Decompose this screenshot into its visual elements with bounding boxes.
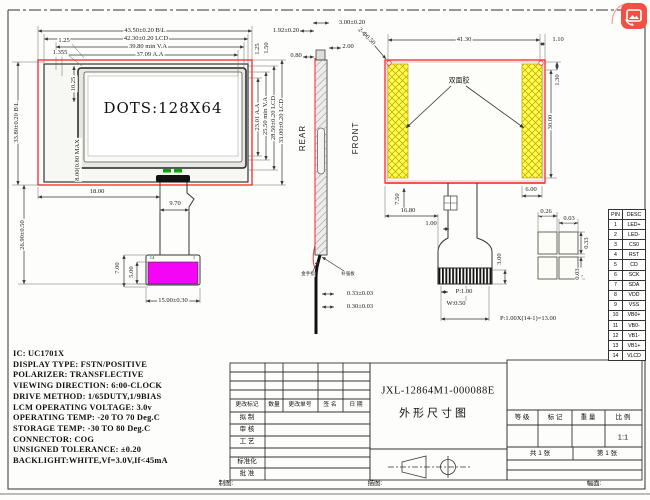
table-row: 4RST — [609, 250, 646, 260]
dim-side-300: 3.00±0.20 — [338, 20, 366, 27]
dim-bottom-1800: 18.00 — [89, 189, 106, 196]
dim-rear-1680: 16.80 — [400, 208, 417, 215]
rev-qty-header: 数量 — [268, 403, 280, 409]
mark-header: 标 记 — [548, 415, 563, 422]
spec-line: VIEWING DIRECTION: 6:00-CLOCK — [13, 381, 168, 392]
dim-side-033: 0.33±0.03 — [346, 291, 374, 298]
pad-detail-view — [538, 232, 578, 279]
dim-bottom-970: 9.70 — [168, 201, 181, 208]
table-row: 6SCK — [609, 270, 646, 280]
picture-icon — [624, 6, 644, 26]
table-row: 9VSS — [609, 300, 646, 310]
projection-symbol — [388, 456, 472, 478]
pin-number: 14 — [609, 351, 623, 361]
dim-right-bl: 33.00±0.20 LCD — [279, 98, 286, 144]
bottom-format-label: 幅面: — [587, 481, 602, 488]
rear-side-label: REAR — [299, 124, 307, 152]
pin-desc: VLCD — [623, 351, 646, 361]
dim-offset-1355: 1.355 — [52, 50, 69, 57]
pin-number: 12 — [609, 331, 623, 341]
dim-pad-003a: 0.03 — [562, 216, 575, 223]
drawing-sheet: DOTS:128X64 43.50±0.20 B\L 42.30±0.20 LC… — [0, 0, 650, 500]
side-view — [313, 50, 344, 334]
stiffener-label: 补强板 — [341, 272, 355, 277]
pin-desc: VB0+ — [623, 310, 646, 320]
pin-table-header-pin: PIN — [609, 210, 623, 220]
spec-line: LCM OPERATING VOLTAGE: 3.0v — [13, 403, 168, 414]
dim-width-lcd: 42.30±0.20 LCD — [123, 36, 169, 43]
pin-desc: SCK — [623, 270, 646, 280]
spec-line: DISPLAY TYPE: FSTN/POSITIVE — [13, 360, 168, 371]
front-side-label: FRONT — [352, 121, 360, 156]
spec-line: CONNECTOR: COG — [13, 435, 168, 446]
dim-bottom-700: 7.00 — [115, 261, 122, 274]
pin-number: 11 — [609, 321, 623, 331]
spec-line: DRIVE METHOD: 1/65DUTY,1/9BIAS — [13, 392, 168, 403]
bottom-draw-label: 制图: — [219, 481, 234, 488]
spec-line: IC: UC1701X — [13, 349, 168, 360]
pin-desc: CS0 — [623, 240, 646, 250]
dim-pin-width: W:0.50 — [445, 301, 466, 308]
dim-side-030: 0.30±0.03 — [346, 304, 374, 311]
scale-header: 比 例 — [616, 415, 631, 422]
dim-rear-100: 1.00 — [424, 221, 437, 228]
pin-number: 10 — [609, 310, 623, 320]
dim-rear-110: 1.10 — [551, 37, 564, 44]
pin-number: 7 — [609, 280, 623, 290]
dim-rear-130: 1.30 — [555, 73, 562, 86]
table-row: 8VDD — [609, 290, 646, 300]
table-row: 13VB1+ — [609, 341, 646, 351]
dim-pin-pitch: P:1.00 — [455, 289, 474, 296]
rev-date-header: 日 期 — [349, 403, 362, 409]
dim-width-aa: 37.09 A.A — [136, 52, 165, 59]
dim-side-080: 0.80 — [289, 53, 302, 60]
pin-desc: VB1- — [623, 331, 646, 341]
table-row: 10VB0+ — [609, 310, 646, 320]
grade-header: 等 级 — [515, 415, 530, 422]
dim-right-va: 25.50 min V.A — [263, 96, 270, 136]
spec-text-block: IC: UC1701X DISPLAY TYPE: FSTN/POSITIVE … — [13, 349, 168, 467]
pin-table: PINDESC 1LED+ 2LED- 3CS0 4RST 5CD 6SCK 7… — [608, 209, 646, 361]
role-approve: 批 准 — [240, 471, 255, 478]
pin-number: 2 — [609, 230, 623, 240]
table-row: 3CS0 — [609, 240, 646, 250]
dim-right-aa: 23.01 A.A — [255, 103, 262, 132]
pin-number: 1 — [609, 220, 623, 230]
dim-rear-600: 6.00 — [524, 187, 537, 194]
pin-desc: SDA — [623, 280, 646, 290]
gold-finger-label: 金手指 — [301, 272, 315, 277]
dim-width-bl: 43.50±0.20 B\L — [123, 28, 166, 35]
dim-bottom-500: 5.00 — [129, 265, 136, 278]
table-row: 2LED- — [609, 230, 646, 240]
role-draft: 拟 制 — [240, 415, 255, 422]
pin-number: 6 — [609, 270, 623, 280]
table-row: 14VLCD — [609, 351, 646, 361]
dim-max-080: 8.00(0.80 MAX — [75, 138, 82, 182]
front-view — [38, 60, 252, 285]
dim-height-bl: 33.80±0.20 B\L — [14, 100, 21, 143]
table-row: 1LED+ — [609, 220, 646, 230]
pin-desc: VDD — [623, 290, 646, 300]
sheet-number: 第 1 张 — [597, 451, 617, 458]
dim-rear-4130: 41.30 — [456, 37, 473, 44]
pin-number: 8 — [609, 290, 623, 300]
tape-label: 双面胶 — [448, 78, 471, 85]
pin-number: 5 — [609, 260, 623, 270]
dim-offset-125: 1.25 — [57, 38, 70, 45]
dim-tail-2690: 26.90±0.50 — [20, 219, 27, 251]
pin-number: 13 — [609, 341, 623, 351]
pin-desc: LED- — [623, 230, 646, 240]
spec-line: POLARIZER: TRANSFLECTIVE — [13, 370, 168, 381]
connector-pin14-label: 14 — [150, 256, 155, 261]
pin-table-header-desc: DESC — [623, 210, 646, 220]
pin-desc: RST — [623, 250, 646, 260]
dim-side-192: 1.92±0.20 — [272, 28, 300, 35]
rev-order-header: 更改单号 — [288, 403, 311, 409]
table-row: 11VB0- — [609, 321, 646, 331]
role-standard: 标准化 — [237, 459, 257, 466]
role-check: 审 核 — [240, 427, 255, 434]
dim-rear-300: 3.00 — [497, 252, 504, 265]
part-number: JXL-12864M1-000088E — [381, 386, 494, 397]
role-process: 工 艺 — [240, 439, 255, 446]
dim-side-200: 2.00 — [341, 44, 354, 51]
spec-line: UNSIGNED TOLERANCE: ±0.20 — [13, 445, 168, 456]
pin-desc: VB0- — [623, 321, 646, 331]
table-row: 5CD — [609, 260, 646, 270]
dim-offset-1025: 10.25 — [71, 76, 78, 93]
pin-desc: LED+ — [623, 220, 646, 230]
total-sheets: 共 1 张 — [530, 451, 550, 458]
dim-width-va: 39.80 min V.A — [128, 44, 168, 51]
table-row: 7SDA — [609, 280, 646, 290]
dim-right-150: 1.50 — [264, 41, 271, 54]
pin-desc: VSS — [623, 300, 646, 310]
weight-header: 重 量 — [581, 415, 596, 422]
watermark-app-icon[interactable] — [621, 3, 647, 29]
rev-mark-header: 更改标记 — [235, 403, 258, 409]
pin-desc: VB1+ — [623, 341, 646, 351]
dim-pad-026: 0.26 — [539, 209, 552, 216]
pin-number: 9 — [609, 300, 623, 310]
pin-desc: CD — [623, 260, 646, 270]
dim-bottom-1500: 15.00±0.30 — [157, 298, 189, 305]
pin-number: 4 — [609, 250, 623, 260]
pin-number: 3 — [609, 240, 623, 250]
dim-rear-3000: 30.00 — [548, 114, 555, 131]
dim-right-125: 1.25 — [255, 42, 262, 55]
rev-sign-header: 签 名 — [323, 403, 336, 409]
scale-value: 1:1 — [618, 433, 628, 441]
dim-rear-750: 7.50 — [395, 192, 402, 205]
drawing-title: 外形尺寸图 — [399, 409, 469, 420]
dim-pad-003b: 0.03 — [575, 267, 582, 280]
spec-line: STORAGE TEMP: -30 TO 80 Deg.C — [13, 424, 168, 435]
spec-line: BACKLIGHT:WHITE,Vf=3.0V,If<45mA — [13, 456, 168, 467]
dim-pad-033: 0.33 — [584, 236, 591, 249]
dim-right-lcd: 28.50±0.20 LCD — [271, 95, 278, 141]
dim-pitch-total: P:1.00X(14-1)=13.00 — [499, 316, 557, 323]
table-row: 12VB1- — [609, 331, 646, 341]
connector-pin1-label: 1 — [193, 256, 195, 261]
display-resolution-text: DOTS:128X64 — [103, 99, 222, 117]
bottom-trace-label: 描图: — [368, 481, 383, 488]
spec-line: OPERATING TEMP: -20 TO 70 Deg.C — [13, 413, 168, 424]
